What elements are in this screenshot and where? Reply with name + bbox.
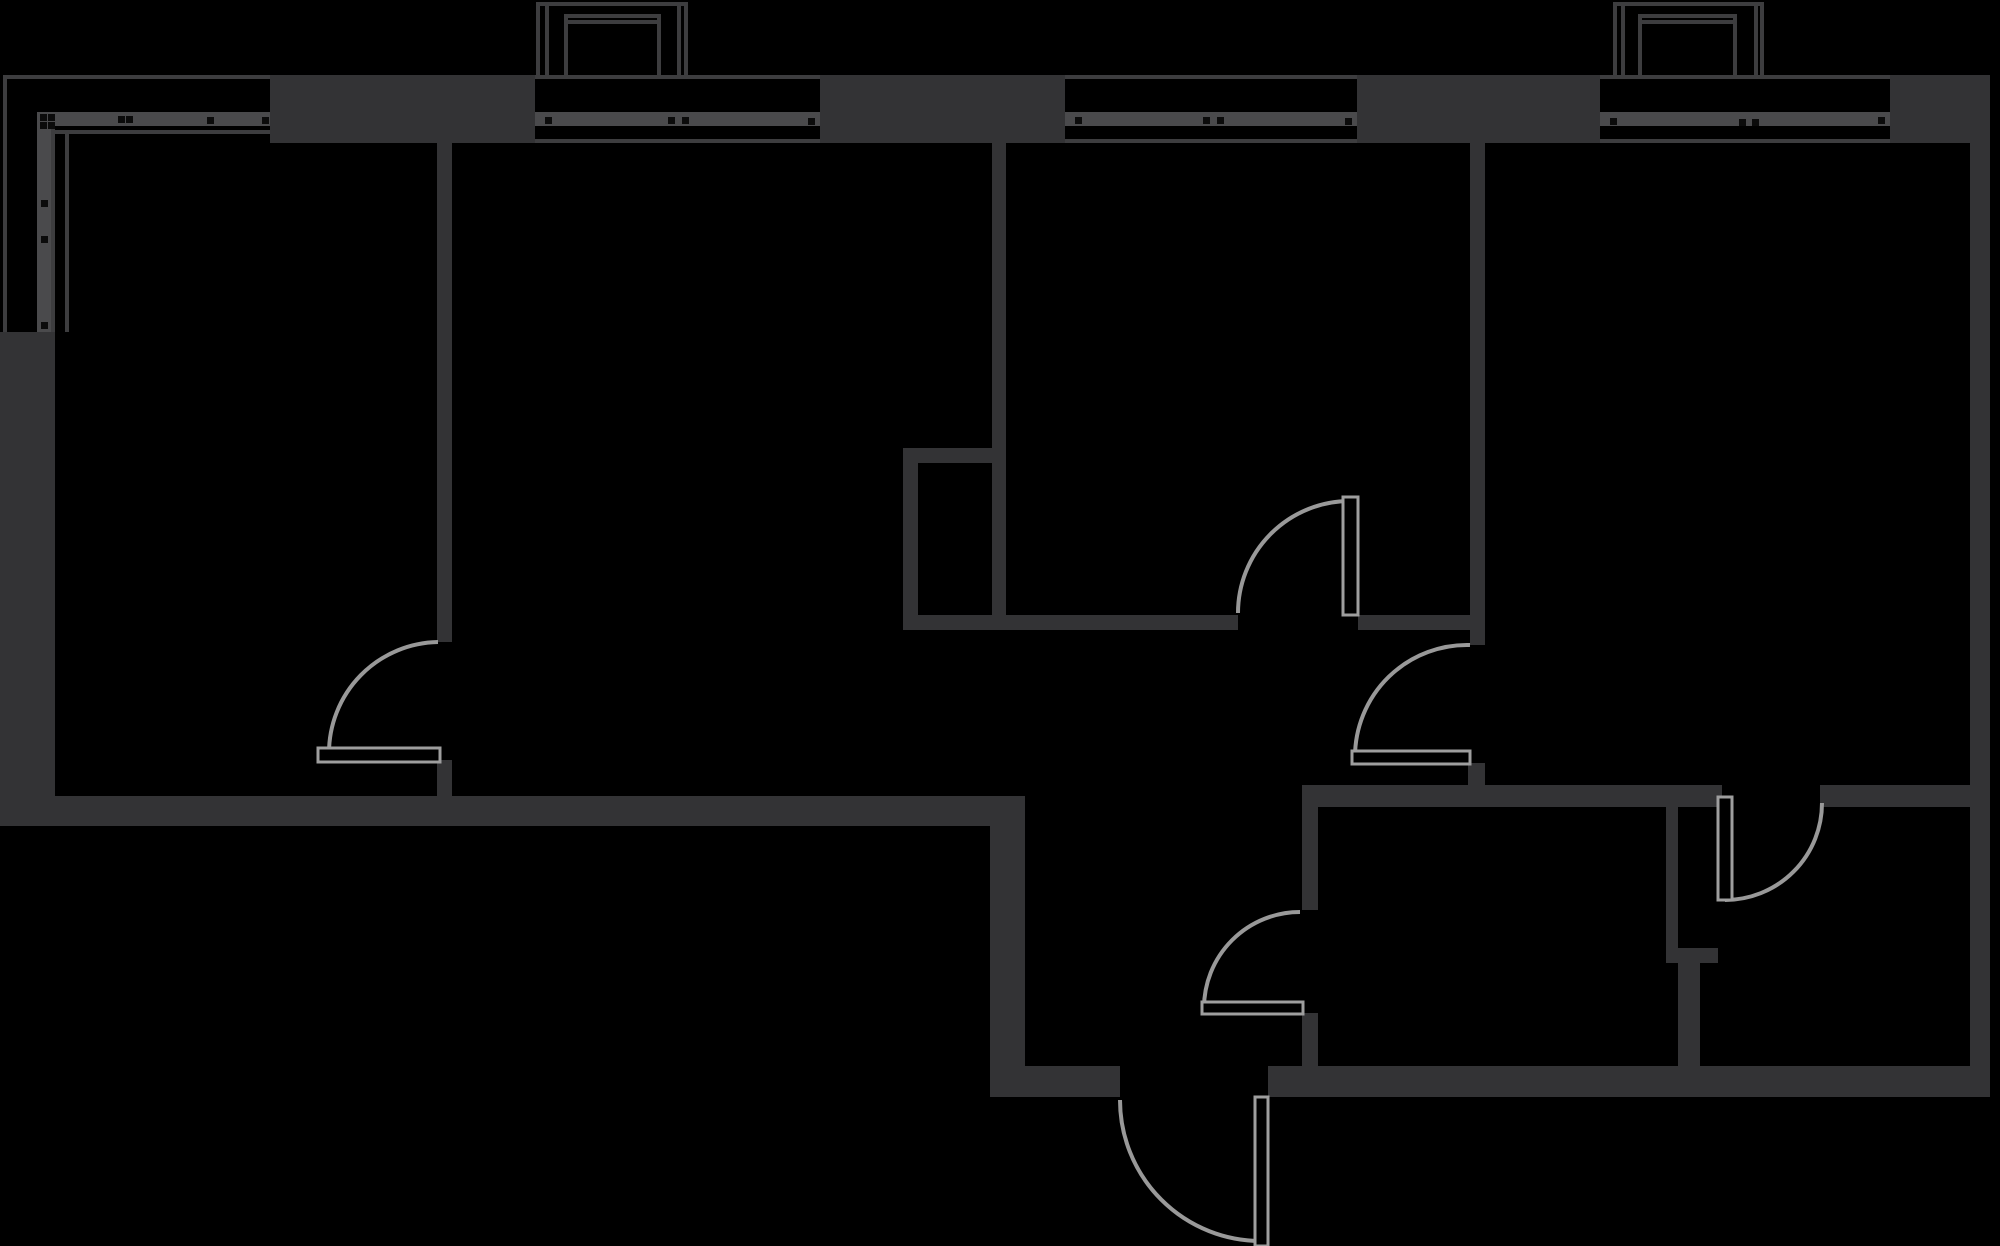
window-glazing-bar <box>37 112 270 126</box>
balcony-outline-line <box>1760 2 1764 75</box>
glazing-fixing-dot <box>1752 119 1759 126</box>
wall-segment <box>1468 763 1485 786</box>
glazing-fixing-dot <box>40 114 47 121</box>
wall-segment <box>990 826 1025 1097</box>
glazing-fixing-dot <box>41 322 48 329</box>
glazing-fixing-dot <box>545 117 552 124</box>
wall-segment <box>270 75 535 143</box>
balcony-outline-line <box>677 2 681 75</box>
glazing-fixing-dot <box>1878 117 1885 124</box>
glazing-fixing-dot <box>1610 118 1617 125</box>
wall-segment <box>1357 75 1600 143</box>
wall-segment <box>0 796 1025 826</box>
outline-line <box>51 126 55 332</box>
door-swing-arc <box>1725 803 1822 900</box>
glazing-fixing-dot <box>682 117 689 124</box>
glazing-fixing-dot <box>41 200 48 207</box>
glazing-fixing-dot <box>41 236 48 243</box>
balcony-outline-line <box>684 2 688 75</box>
wall-segment <box>1666 948 1718 963</box>
outline-line <box>1065 139 1357 143</box>
wall-segment <box>820 75 1065 143</box>
door-swing-arc <box>1355 645 1470 757</box>
floor-plan-canvas <box>0 0 2000 1246</box>
balcony-outline-line <box>564 14 568 75</box>
wall-segment <box>1268 1066 1990 1097</box>
glazing-fixing-dot <box>48 122 55 129</box>
door-leaf <box>1718 797 1732 900</box>
wall-segment <box>1470 143 1485 645</box>
balcony-outline-line <box>536 2 688 6</box>
balcony-outline-line <box>564 14 661 18</box>
door-leaf <box>1202 1002 1303 1014</box>
glazing-fixing-dot <box>808 118 815 125</box>
wall-segment <box>437 143 452 642</box>
outline-line <box>3 75 7 332</box>
door-leaf <box>1343 497 1358 615</box>
window-glazing-bar <box>535 112 820 126</box>
balcony-outline-line <box>1638 14 1737 18</box>
balcony-outline-line <box>564 20 661 24</box>
balcony-outline-line <box>1733 14 1737 75</box>
outline-line <box>535 139 820 143</box>
glazing-fixing-dot <box>207 117 214 124</box>
balcony-outline-line <box>1638 14 1642 75</box>
glazing-fixing-dot <box>668 117 675 124</box>
glazing-fixing-dot <box>1217 117 1224 124</box>
balcony-outline-line <box>1613 2 1764 6</box>
glazing-fixing-dot <box>48 114 55 121</box>
balcony-outline-line <box>1613 2 1617 75</box>
glazing-fixing-dot <box>262 117 269 124</box>
outline-line <box>1600 139 1890 143</box>
wall-segment <box>1358 615 1470 630</box>
wall-segment <box>1970 75 1990 1097</box>
wall-segment <box>1820 785 1990 807</box>
glazing-fixing-dot <box>1075 117 1082 124</box>
balcony-outline-line <box>536 2 540 75</box>
glazing-fixing-dot <box>1203 117 1210 124</box>
balcony-outline-line <box>545 2 549 75</box>
wall-segment <box>1302 1013 1318 1066</box>
balcony-outline-line <box>657 14 661 75</box>
balcony-outline-line <box>1621 2 1625 75</box>
balcony-outline-line <box>1754 2 1758 75</box>
wall-segment <box>1302 807 1318 910</box>
outline-line <box>51 130 270 134</box>
wall-segment <box>992 143 1006 630</box>
wall-segment <box>437 760 452 796</box>
outline-line <box>65 134 69 332</box>
glazing-fixing-dot <box>118 116 125 123</box>
door-swing-arc <box>1238 501 1350 613</box>
wall-segment <box>903 615 1238 630</box>
door-leaf <box>318 748 440 762</box>
wall-segment <box>1025 1066 1120 1097</box>
wall-segment <box>1678 963 1700 1066</box>
glazing-fixing-dot <box>1739 119 1746 126</box>
wall-segment <box>1302 785 1722 807</box>
door-swing-arc <box>329 642 438 753</box>
wall-segment <box>903 448 918 630</box>
floor-plan-svg <box>0 0 2000 1246</box>
glazing-fixing-dot <box>40 122 47 129</box>
door-swing-arc <box>1204 912 1300 1008</box>
door-leaf <box>1255 1097 1268 1246</box>
wall-segment <box>903 448 1006 463</box>
wall-segment <box>0 332 55 826</box>
window-glazing-bar <box>37 112 51 332</box>
glazing-fixing-dot <box>1345 118 1352 125</box>
door-leaf <box>1352 751 1470 764</box>
glazing-fixing-dot <box>126 116 133 123</box>
door-swing-arc <box>1120 1100 1261 1241</box>
balcony-outline-line <box>1638 20 1737 24</box>
window-glazing-bar <box>1065 112 1357 126</box>
wall-segment <box>1666 807 1678 948</box>
